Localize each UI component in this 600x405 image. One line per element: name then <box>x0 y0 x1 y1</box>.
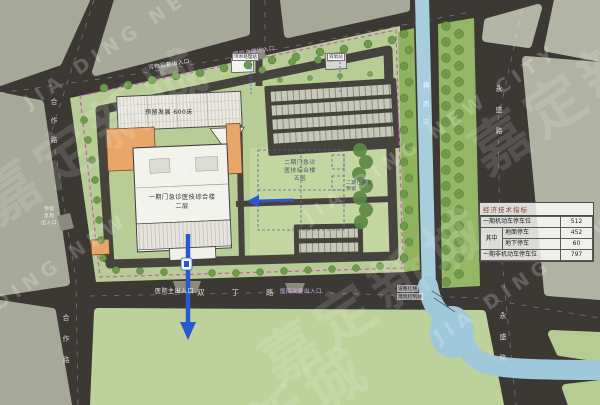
parking-lot-north <box>264 78 400 156</box>
label-phase1-building: 一期门急诊医技综合楼 <box>139 192 225 201</box>
entrance-label-emergency-1: 预留 <box>44 205 55 212</box>
table-row: 其中 地面停车 452 <box>481 228 593 239</box>
row-group-label: 其中 <box>481 228 503 250</box>
label-phase2-ward-note: 预留 <box>346 185 357 192</box>
row-label: 地下停车 <box>503 239 561 250</box>
road-name-yongsheng-north: 永盛路 <box>494 85 504 148</box>
row-label: 一期非机动车停车位 <box>481 250 561 261</box>
economic-indicators-table: 经济技术指标 一期机动车停车位 512 其中 地面停车 452 地下停车 60 … <box>479 202 594 262</box>
road-name-yongsheng-south: 永盛路 <box>498 312 508 375</box>
entrance-label-main: 医院主出入口 <box>155 286 194 295</box>
table-row: 一期机动车停车位 512 <box>481 217 593 228</box>
annotation-control-line: 建筑控制线 <box>397 293 423 300</box>
row-value: 452 <box>561 228 593 239</box>
row-value: 512 <box>561 217 593 228</box>
label-phase2-line3: 五层 <box>270 173 330 182</box>
annotation-red-line: 道路红线 <box>397 285 418 292</box>
entrance-label-emergency-3: 出入口 <box>41 219 57 226</box>
label-phase1-floors: 二层 <box>139 201 225 210</box>
row-value: 797 <box>561 250 593 261</box>
label-utility-left: 污水处理站 <box>232 53 259 61</box>
table-title: 经济技术指标 <box>480 203 593 216</box>
row-label: 地面停车 <box>503 228 561 239</box>
label-reserved-development: 预留发展 600床 <box>145 107 193 116</box>
table-row: 一期非机动车停车位 797 <box>481 250 593 261</box>
road-name-hezuo-north: 合作路 <box>49 98 59 155</box>
road-name-hezuo-south: 合作路 <box>61 314 71 377</box>
row-value: 60 <box>561 239 593 250</box>
label-utility-right: 液氧站 <box>327 53 345 61</box>
row-label: 一期机动车停车位 <box>481 217 561 228</box>
parking-lot-south <box>294 223 364 260</box>
site-plan: JIA DING NEW CITY JIA DING NEW CITY JIA … <box>0 0 600 405</box>
entrance-label-bottom-secondary: 医院次要出入口 <box>280 287 322 295</box>
entrance-label-emergency-2: 急救 <box>44 212 55 219</box>
gate-marker <box>181 258 192 270</box>
river-name: 横沥河 <box>420 82 430 138</box>
